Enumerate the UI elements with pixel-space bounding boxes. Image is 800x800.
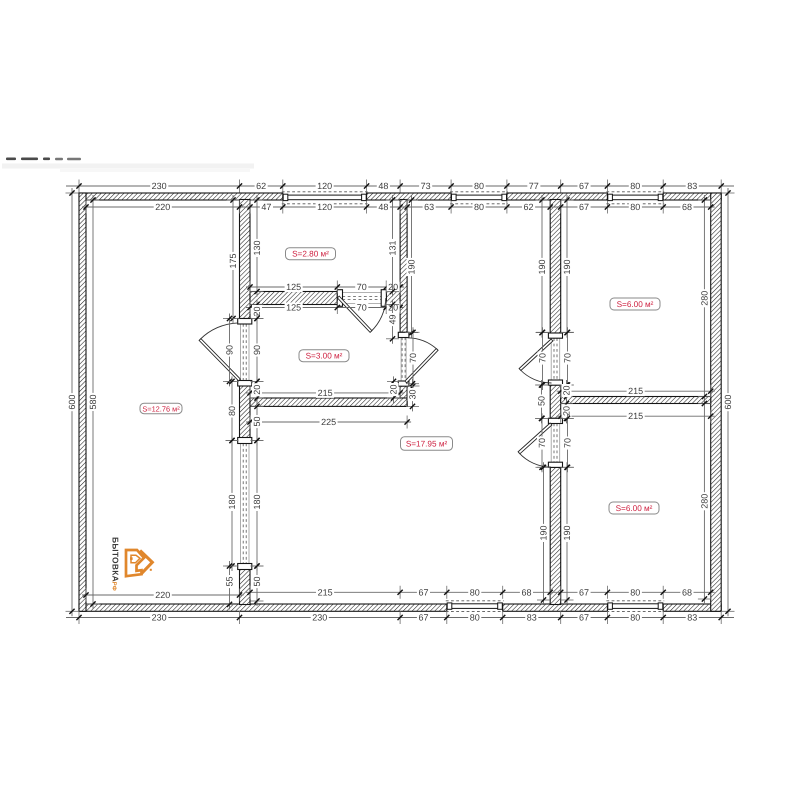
svg-text:62: 62 [523,202,533,212]
svg-text:50: 50 [252,416,262,426]
svg-text:190: 190 [539,525,549,540]
svg-text:63: 63 [424,202,434,212]
svg-text:50: 50 [252,576,262,586]
svg-text:БЫТОВКА: БЫТОВКА [111,537,121,582]
svg-text:190: 190 [562,259,572,274]
svg-text:67: 67 [579,181,589,191]
svg-text:70: 70 [357,303,367,313]
svg-text:220: 220 [155,590,170,600]
svg-text:190: 190 [562,525,572,540]
svg-text:600: 600 [67,395,77,410]
svg-text:125: 125 [286,303,301,313]
svg-text:280: 280 [699,494,709,509]
svg-text:125: 125 [286,282,301,292]
svg-text:220: 220 [155,202,170,212]
svg-text:190: 190 [407,259,417,274]
svg-text:S=3.00 м²: S=3.00 м² [306,352,343,361]
svg-text:20: 20 [562,385,572,395]
svg-text:.РФ: .РФ [111,580,118,591]
svg-text:48: 48 [378,181,388,191]
svg-text:70: 70 [563,353,573,363]
svg-text:S=2.80 м²: S=2.80 м² [292,250,329,259]
svg-text:S=6.00 м²: S=6.00 м² [616,504,653,513]
svg-text:175: 175 [228,253,238,268]
svg-text:S=12.76 м²: S=12.76 м² [142,405,180,414]
svg-text:215: 215 [318,587,333,597]
svg-text:20: 20 [562,406,572,416]
svg-text:83: 83 [687,613,697,623]
svg-text:80: 80 [474,202,484,212]
svg-text:80: 80 [630,181,640,191]
svg-text:120: 120 [317,181,332,191]
svg-text:230: 230 [152,613,167,623]
svg-text:77: 77 [529,181,539,191]
svg-text:73: 73 [421,181,431,191]
svg-text:67: 67 [579,202,589,212]
svg-text:S=6.00 м²: S=6.00 м² [617,300,654,309]
svg-text:215: 215 [318,388,333,398]
svg-text:48: 48 [378,202,388,212]
svg-text:S=17.95 м²: S=17.95 м² [406,440,448,449]
svg-text:225: 225 [321,417,336,427]
svg-text:70: 70 [563,438,573,448]
svg-text:20: 20 [252,385,262,395]
svg-text:67: 67 [418,613,428,623]
svg-text:68: 68 [682,202,692,212]
svg-text:50: 50 [537,396,547,406]
svg-text:47: 47 [261,202,271,212]
svg-text:55: 55 [225,576,235,586]
svg-text:580: 580 [88,394,98,409]
svg-text:120: 120 [317,202,332,212]
svg-text:600: 600 [723,395,733,410]
svg-text:230: 230 [312,613,327,623]
svg-text:190: 190 [537,259,547,274]
svg-text:180: 180 [252,494,262,509]
svg-text:30: 30 [408,389,418,399]
svg-text:80: 80 [227,406,237,416]
svg-text:131: 131 [388,240,398,255]
svg-text:80: 80 [630,202,640,212]
svg-text:83: 83 [527,613,537,623]
svg-text:20: 20 [389,384,399,394]
svg-text:70: 70 [408,353,418,363]
svg-text:80: 80 [630,613,640,623]
svg-text:230: 230 [152,181,167,191]
svg-text:67: 67 [418,587,428,597]
svg-text:90: 90 [252,345,262,355]
svg-text:62: 62 [256,181,266,191]
svg-text:80: 80 [630,587,640,597]
svg-text:70: 70 [537,438,547,448]
svg-text:83: 83 [687,181,697,191]
svg-text:215: 215 [628,386,643,396]
svg-text:49: 49 [388,314,398,324]
svg-text:70: 70 [357,282,367,292]
svg-text:90: 90 [225,345,235,355]
svg-text:80: 80 [470,587,480,597]
svg-text:68: 68 [682,587,692,597]
svg-text:130: 130 [252,240,262,255]
svg-text:67: 67 [579,587,589,597]
svg-text:68: 68 [521,587,531,597]
svg-text:280: 280 [699,291,709,306]
svg-text:80: 80 [470,613,480,623]
svg-text:180: 180 [227,494,237,509]
svg-text:215: 215 [628,411,643,421]
svg-text:70: 70 [538,353,548,363]
svg-text:67: 67 [579,613,589,623]
svg-text:80: 80 [474,181,484,191]
